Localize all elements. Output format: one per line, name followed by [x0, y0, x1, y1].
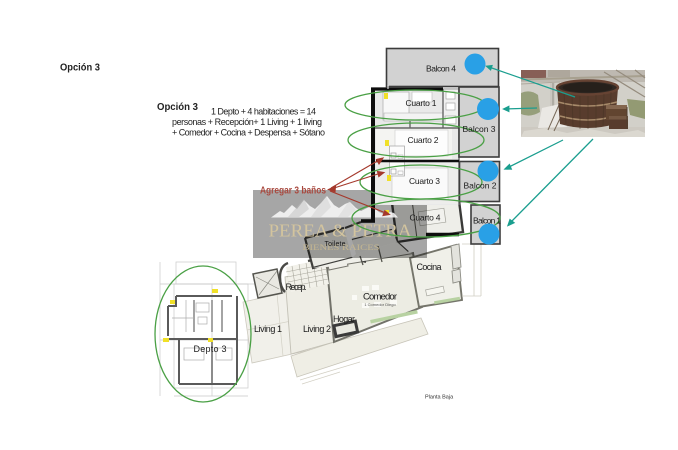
svg-text:PEREA & PETRA: PEREA & PETRA: [269, 221, 412, 241]
svg-text:Cuarto 4: Cuarto 4: [410, 213, 441, 223]
svg-text:Cuarto 2: Cuarto 2: [408, 135, 439, 145]
svg-text:Opción 3: Opción 3: [157, 101, 198, 113]
svg-text:Balcon 2: Balcon 2: [464, 181, 497, 191]
svg-text:Planta Baja: Planta Baja: [425, 395, 454, 401]
svg-text:Cuarto 1: Cuarto 1: [406, 98, 437, 108]
svg-text:Agregar 3 baños: Agregar 3 baños: [260, 186, 326, 197]
svg-text:Living 1: Living 1: [254, 324, 282, 334]
svg-text:+ Comedor + Cocina + Despensa: + Comedor + Cocina + Despensa + Sótano: [172, 128, 325, 138]
svg-text:Balcon 4: Balcon 4: [426, 64, 456, 74]
svg-text:Depto 3: Depto 3: [194, 344, 227, 354]
svg-text:1 Comedor Diego: 1 Comedor Diego: [364, 302, 396, 307]
svg-text:Cocina: Cocina: [417, 262, 442, 272]
svg-text:Balcon 3: Balcon 3: [463, 124, 496, 134]
svg-text:Comedor: Comedor: [363, 292, 397, 303]
svg-text:personas + Recepción+ 1 Livin: personas + Recepción+ 1 Living + 1 livin…: [172, 117, 322, 127]
svg-text:Opción 3: Opción 3: [60, 62, 100, 74]
svg-text:Hogar: Hogar: [333, 314, 355, 324]
svg-text:Recep.: Recep.: [286, 282, 307, 292]
svg-text:Toilete: Toilete: [325, 241, 346, 248]
svg-text:Balcon 1: Balcon 1: [473, 216, 501, 226]
svg-text:Cuarto 3: Cuarto 3: [409, 176, 440, 186]
svg-text:1 Depto + 4 habitaciones = 14: 1 Depto + 4 habitaciones = 14: [211, 107, 316, 117]
svg-text:Living 2: Living 2: [303, 324, 331, 334]
